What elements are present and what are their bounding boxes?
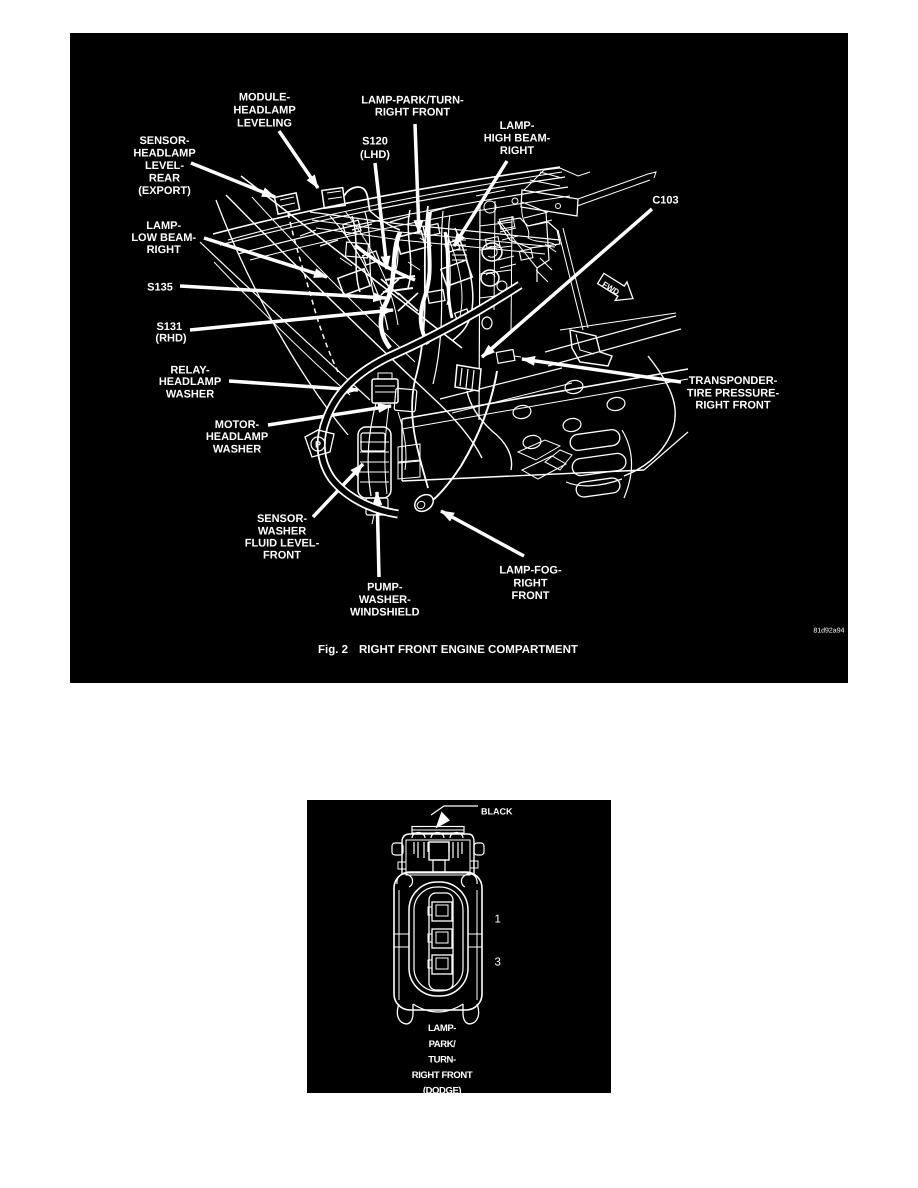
svg-text:TIRE PRESSURE-: TIRE PRESSURE- xyxy=(687,388,780,400)
svg-text:PUMP-: PUMP- xyxy=(367,582,403,594)
svg-text:PARK/: PARK/ xyxy=(429,1039,457,1050)
svg-text:3: 3 xyxy=(495,957,501,969)
svg-text:WASHER: WASHER xyxy=(258,525,306,537)
svg-text:RIGHT: RIGHT xyxy=(513,578,548,590)
svg-text:S131: S131 xyxy=(156,321,182,333)
svg-text:81d92a94: 81d92a94 xyxy=(813,627,844,635)
svg-text:TRANSPONDER-: TRANSPONDER- xyxy=(689,375,778,387)
svg-text:LEVELING: LEVELING xyxy=(237,118,292,130)
svg-text:C103: C103 xyxy=(652,195,678,207)
svg-text:MODULE-: MODULE- xyxy=(239,92,291,104)
svg-text:P: P xyxy=(315,440,321,450)
svg-text:LAMP-FOG-: LAMP-FOG- xyxy=(499,565,562,577)
svg-text:HEADLAMP: HEADLAMP xyxy=(159,376,221,388)
svg-text:LAMP-PARK/TURN-: LAMP-PARK/TURN- xyxy=(361,95,464,107)
svg-text:MOTOR-: MOTOR- xyxy=(215,419,260,431)
svg-text:WASHER: WASHER xyxy=(213,444,261,456)
svg-text:FRONT: FRONT xyxy=(263,550,301,562)
svg-text:RIGHT: RIGHT xyxy=(147,244,182,256)
svg-text:WINDSHIELD: WINDSHIELD xyxy=(350,607,420,619)
svg-text:LAMP-: LAMP- xyxy=(500,120,535,132)
svg-text:Fig. 2: Fig. 2 xyxy=(318,644,348,656)
svg-text:(LHD): (LHD) xyxy=(360,149,390,161)
svg-text:(EXPORT): (EXPORT) xyxy=(138,185,191,197)
svg-text:LAMP-: LAMP- xyxy=(428,1023,456,1034)
svg-text:HEADLAMP: HEADLAMP xyxy=(206,431,268,443)
svg-text:LEVEL-: LEVEL- xyxy=(145,160,184,172)
svg-text:HIGH BEAM-: HIGH BEAM- xyxy=(484,133,551,145)
svg-text:FLUID LEVEL-: FLUID LEVEL- xyxy=(245,537,320,549)
svg-text:RIGHT FRONT: RIGHT FRONT xyxy=(695,400,770,412)
svg-text:LAMP-: LAMP- xyxy=(146,220,181,232)
svg-text:WASHER-: WASHER- xyxy=(359,594,411,606)
svg-text:HEADLAMP: HEADLAMP xyxy=(133,148,195,160)
svg-text:S120: S120 xyxy=(362,136,388,148)
svg-text:BLACK: BLACK xyxy=(481,807,513,817)
svg-text:SENSOR-: SENSOR- xyxy=(139,135,189,147)
svg-text:S135: S135 xyxy=(147,282,173,294)
svg-text:(RHD): (RHD) xyxy=(155,333,186,345)
svg-text:REAR: REAR xyxy=(149,173,180,185)
svg-text:1: 1 xyxy=(495,914,501,926)
svg-text:RIGHT: RIGHT xyxy=(500,145,535,157)
svg-text:RELAY-: RELAY- xyxy=(170,364,210,376)
svg-text:LOW BEAM-: LOW BEAM- xyxy=(131,232,196,244)
svg-text:WASHER: WASHER xyxy=(166,389,214,401)
svg-text:FRONT: FRONT xyxy=(512,590,550,602)
svg-text:SENSOR-: SENSOR- xyxy=(257,513,307,525)
svg-text:RIGHT FRONT ENGINE COMPARTMENT: RIGHT FRONT ENGINE COMPARTMENT xyxy=(359,644,578,656)
svg-text:RIGHT FRONT: RIGHT FRONT xyxy=(375,107,450,119)
svg-text:RIGHT FRONT: RIGHT FRONT xyxy=(412,1070,473,1081)
svg-text:TURN-: TURN- xyxy=(428,1055,456,1066)
svg-text:(DODGE): (DODGE) xyxy=(423,1086,462,1097)
svg-text:HEADLAMP: HEADLAMP xyxy=(233,105,295,117)
